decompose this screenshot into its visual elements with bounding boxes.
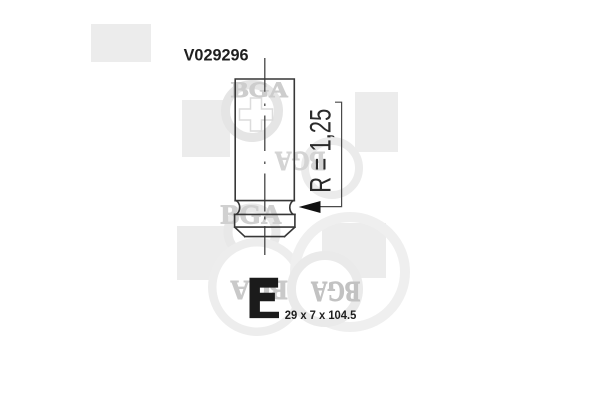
svg-text:BGA: BGA xyxy=(311,275,360,307)
svg-text:R = 1,25: R = 1,25 xyxy=(305,109,338,193)
svg-text:V029296: V029296 xyxy=(184,47,249,65)
svg-text:BGA: BGA xyxy=(231,77,288,102)
svg-text:29 x 7 x 104.5: 29 x 7 x 104.5 xyxy=(285,308,357,322)
